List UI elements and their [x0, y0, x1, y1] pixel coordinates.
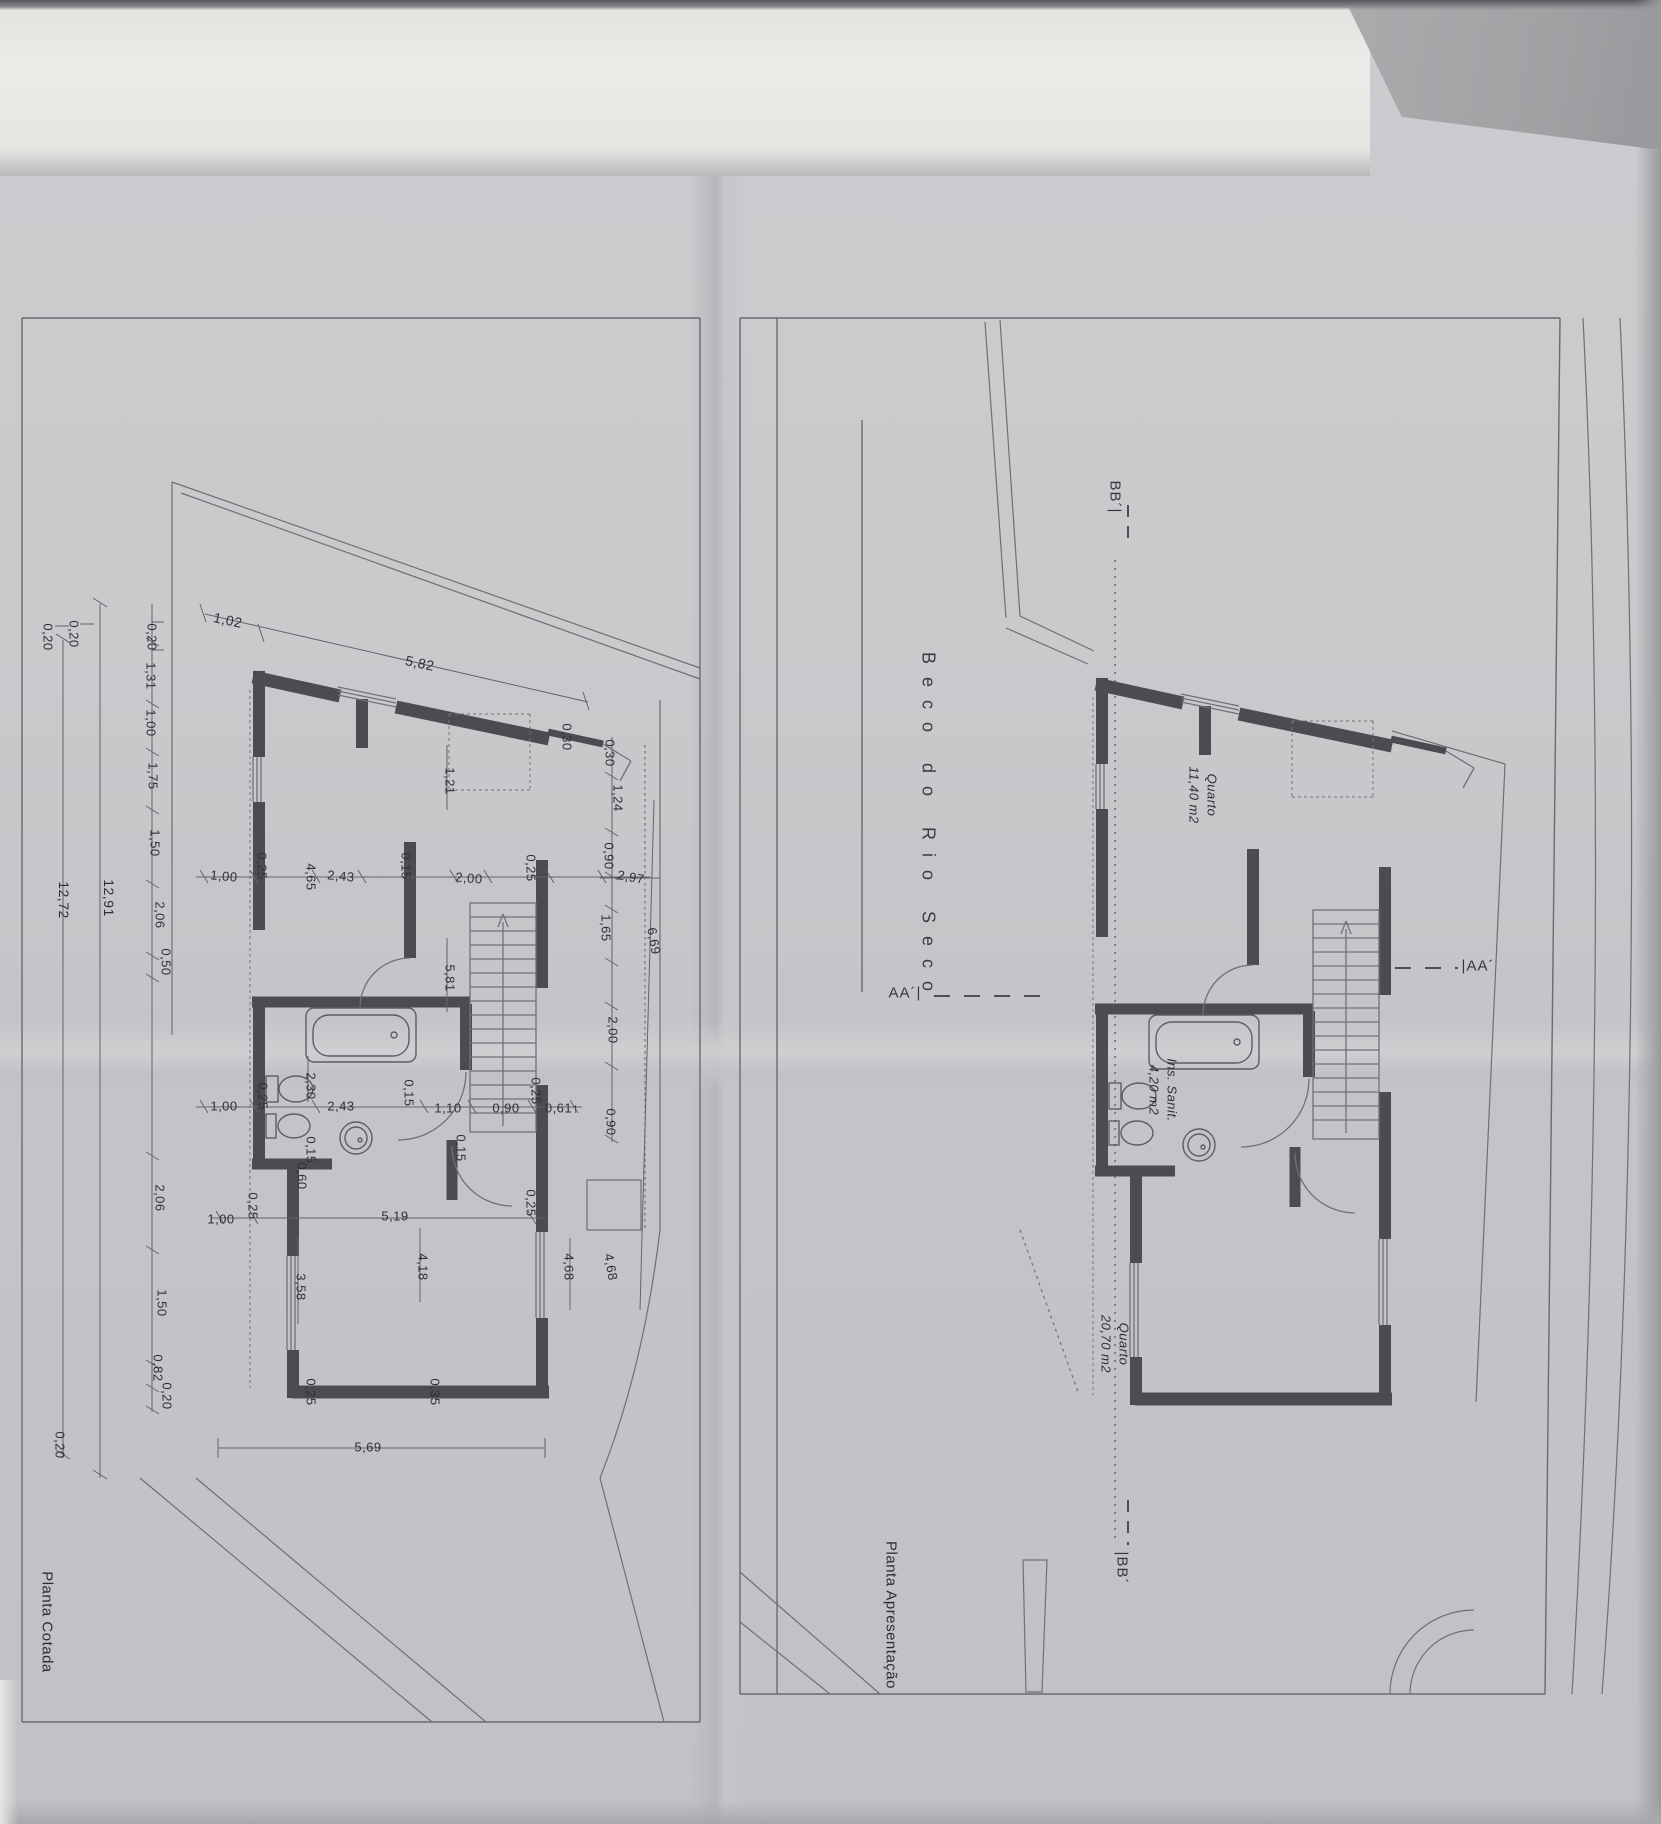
- room-name: Quarto: [1205, 774, 1220, 817]
- room-label-ins-sanit: Ins. Sanit. 4,20 m2: [1145, 1058, 1180, 1121]
- section-marker-bb-bottom: |BB´: [1114, 1552, 1131, 1585]
- dim-label: 0,30: [560, 723, 575, 750]
- dim-label: 3,58: [294, 1273, 309, 1300]
- dim-label: 1,50: [148, 829, 163, 856]
- dim-label: 0,25: [524, 854, 539, 881]
- dim-label: 4,65: [304, 863, 319, 890]
- dim-label: 0,15: [399, 852, 414, 879]
- dim-label: 0,25: [246, 1192, 261, 1219]
- dim-label: 1,00: [210, 867, 239, 884]
- dim-label: 0,25: [529, 1077, 544, 1104]
- dim-label: 0,20: [160, 1382, 175, 1409]
- room-area: 11,40 m2: [1187, 766, 1202, 823]
- dim-label: 0,15: [402, 1079, 417, 1106]
- right-plan-title: Planta Apresentação: [883, 1541, 900, 1689]
- right-building: [1093, 678, 1474, 1405]
- dim-label: 0,20: [67, 620, 82, 647]
- dim-label: 0,25: [255, 852, 270, 879]
- room-name: Ins. Sanit.: [1165, 1058, 1180, 1121]
- dim-label: 4,18: [416, 1253, 431, 1280]
- dim-label: 1,24: [611, 784, 626, 811]
- room-name: Quarto: [1117, 1323, 1132, 1366]
- dim-label-total: 12,72: [56, 881, 72, 919]
- dim-label: 1,31: [144, 662, 159, 689]
- dim-label: 0,25: [256, 1082, 271, 1109]
- dim-label: 1,21: [443, 767, 458, 794]
- dim-label: 2,06: [153, 901, 168, 928]
- section-marker-bb-top: BB´|: [1107, 481, 1124, 514]
- dim-label: 1,75: [146, 762, 161, 789]
- dim-label: 2,00: [455, 869, 484, 886]
- room-area: 20,70 m2: [1099, 1315, 1114, 1373]
- room-label-quarto-1: Quarto 11,40 m2: [1185, 766, 1220, 823]
- dim-label: 0,20: [53, 1431, 68, 1458]
- dim-label: 0,20: [145, 623, 160, 650]
- dim-label: 0,90: [604, 1108, 619, 1135]
- dim-label: 0,90: [602, 842, 617, 869]
- dim-label: 1,00: [210, 1099, 237, 1114]
- dim-label: 1,10: [434, 1101, 461, 1116]
- room-area: 4,20 m2: [1147, 1065, 1162, 1115]
- dim-label: 1,50: [155, 1289, 170, 1316]
- dim-label: 0,30: [603, 739, 618, 766]
- dim-label: 0,60: [295, 1162, 310, 1189]
- dim-label: 1,65: [599, 914, 614, 941]
- room-label-quarto-2: Quarto 20,70 m2: [1097, 1315, 1132, 1373]
- dim-label: 1,00: [207, 1212, 234, 1227]
- dim-label: 0,50: [159, 948, 174, 975]
- section-marker-aa-right: |AA´: [1462, 958, 1495, 975]
- dim-label: 0,20: [41, 623, 56, 650]
- dim-label: 2,00: [606, 1016, 621, 1043]
- scanned-drawing-page: 0,20 0,20 12,72 12,91 0,20 1,31 1,00 1,7…: [0, 0, 1661, 1824]
- dim-label: 0,25: [304, 1378, 319, 1405]
- left-plan-title: Planta Cotada: [39, 1571, 56, 1673]
- dim-label: 2,30: [304, 1072, 319, 1099]
- left-sheet-frame: [22, 318, 700, 1722]
- dim-label: 5,81: [443, 964, 458, 991]
- dim-label: 2,06: [153, 1184, 168, 1211]
- dim-label: 1,00: [144, 709, 159, 736]
- dim-label-total: 12,91: [101, 879, 117, 917]
- dim-label: 0,82: [151, 1354, 166, 1381]
- section-marker-aa-left: AA´|: [889, 985, 922, 1002]
- dim-label: 0,25: [524, 1189, 539, 1216]
- dim-label: 5,69: [354, 1440, 381, 1455]
- dim-label: 0,61↑: [545, 1101, 579, 1116]
- dim-label: 0,15: [304, 1136, 319, 1163]
- dim-label: 5,19: [381, 1209, 408, 1224]
- dim-label: 0,90: [492, 1101, 519, 1116]
- dim-label: 2,43: [327, 1099, 354, 1114]
- dim-label: 0,35: [428, 1378, 443, 1405]
- dim-label: 4,68: [562, 1253, 577, 1280]
- street-name-label: Beco do Rio Seco: [918, 652, 939, 1004]
- dim-label: 0,15: [454, 1134, 469, 1161]
- dim-label: 2,43: [327, 867, 356, 884]
- plan-linework: [0, 0, 1661, 1824]
